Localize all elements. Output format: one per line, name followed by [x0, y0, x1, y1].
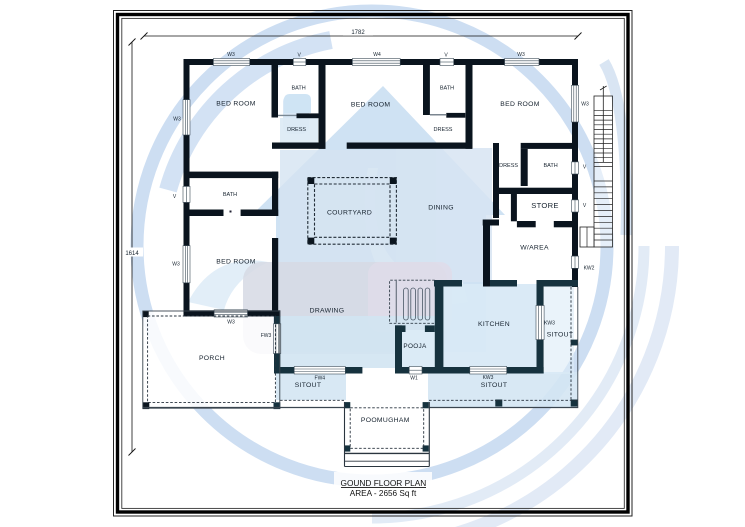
svg-text:KW3: KW3	[544, 321, 555, 327]
svg-text:SITOUT: SITOUT	[295, 382, 322, 389]
svg-text:1782: 1782	[351, 30, 365, 36]
svg-text:BATH: BATH	[291, 86, 305, 92]
svg-text:PORCH: PORCH	[199, 355, 225, 362]
svg-text:BATH: BATH	[543, 163, 557, 169]
svg-text:BED ROOM: BED ROOM	[216, 259, 255, 266]
svg-text:COURTYARD: COURTYARD	[327, 210, 372, 217]
svg-text:BED ROOM: BED ROOM	[216, 101, 255, 108]
svg-text:POOMUGHAM: POOMUGHAM	[361, 417, 410, 424]
svg-text:W1: W1	[410, 376, 418, 382]
svg-text:1614: 1614	[125, 251, 139, 257]
svg-text:FW3: FW3	[261, 333, 272, 339]
svg-text:SITOUT: SITOUT	[547, 331, 574, 338]
svg-text:DRESS: DRESS	[434, 127, 453, 133]
svg-text:AREA - 2656 Sq ft: AREA - 2656 Sq ft	[350, 489, 417, 498]
svg-text:BED ROOM: BED ROOM	[500, 101, 539, 108]
svg-text:FW4: FW4	[315, 376, 326, 382]
svg-text:SITOUT: SITOUT	[481, 382, 508, 389]
svg-text:KW2: KW2	[584, 266, 595, 272]
svg-text:W3: W3	[227, 320, 235, 326]
svg-text:GOUND FLOOR PLAN: GOUND FLOOR PLAN	[341, 478, 427, 488]
svg-text:W/AREA: W/AREA	[520, 244, 549, 251]
svg-text:STORE: STORE	[531, 201, 559, 210]
svg-text:KW3: KW3	[483, 375, 494, 381]
svg-text:BATH: BATH	[440, 86, 454, 92]
svg-text:W3: W3	[581, 102, 589, 108]
svg-text:BED ROOM: BED ROOM	[351, 101, 390, 108]
svg-text:W3: W3	[517, 52, 525, 58]
svg-text:DRAWING: DRAWING	[310, 308, 345, 315]
svg-text:W3: W3	[227, 52, 235, 58]
svg-text:W3: W3	[172, 262, 180, 268]
svg-text:KITCHEN: KITCHEN	[478, 321, 510, 328]
svg-text:W4: W4	[373, 52, 381, 58]
svg-text:W3: W3	[173, 117, 181, 123]
svg-text:DINING: DINING	[428, 205, 454, 212]
svg-text:DRESS: DRESS	[499, 163, 518, 169]
svg-text:POOJA: POOJA	[403, 343, 427, 350]
svg-text:DRESS: DRESS	[287, 127, 306, 133]
svg-text:BATH: BATH	[223, 192, 237, 198]
